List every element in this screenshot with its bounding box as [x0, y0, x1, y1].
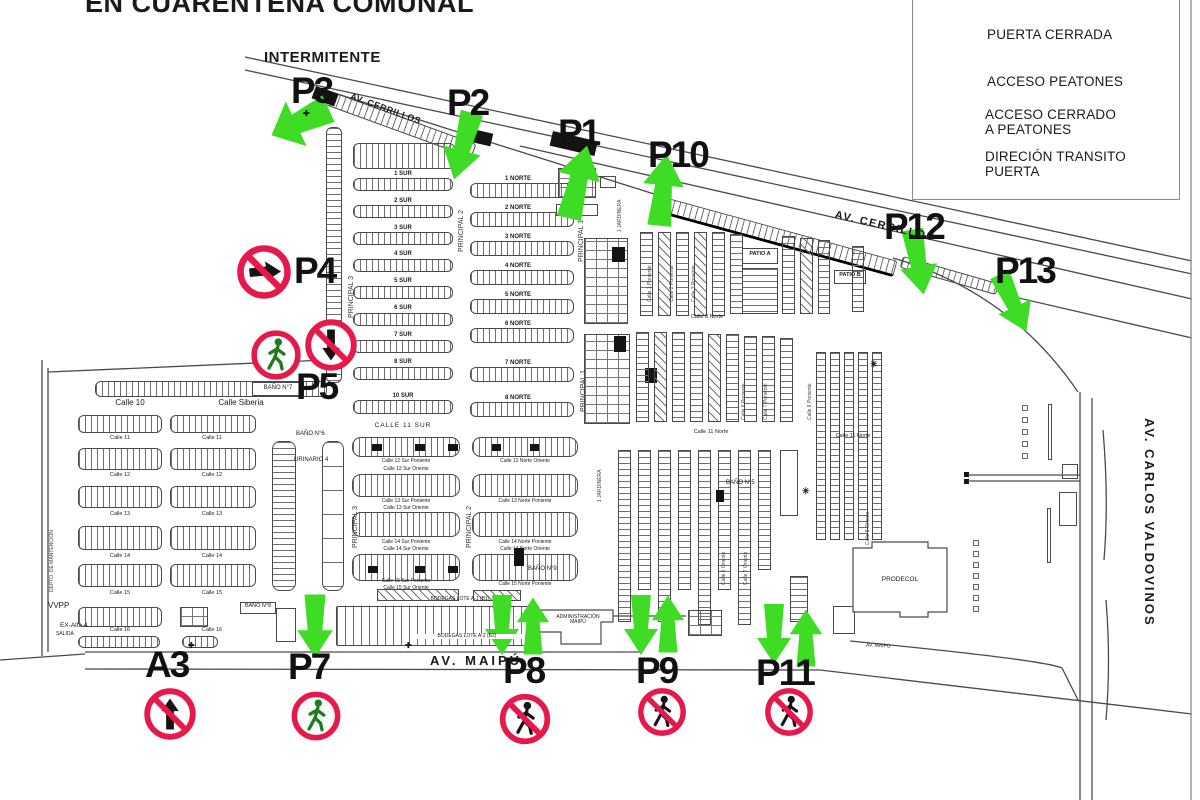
row-label: 8 SUR: [352, 359, 454, 365]
bano5-label: BAÑO N°5: [726, 480, 755, 486]
gate-label-p4: P4: [294, 250, 335, 292]
row-label: 4 SUR: [352, 251, 454, 257]
vvpp-label: VVPP: [48, 602, 69, 611]
calle-11-sur-label: CALLE 11 SUR: [352, 422, 454, 429]
vert-calle-label: Calle 7 Poniente: [764, 383, 769, 420]
calle-11-norte-label: Calle 11 Norte: [818, 434, 888, 440]
gate-label-p11: P11: [756, 652, 814, 694]
row-label: 5 NORTE: [468, 292, 568, 298]
vert-calle-label: Calle 6 Oriente: [722, 552, 727, 585]
calle-label: Calle 12: [176, 473, 248, 479]
intermittent-note: INTERMITENTE: [264, 50, 381, 66]
calle-wide-label: Calle 12 Sur Poniente: [352, 459, 460, 464]
bodega-a2-label: BODEGAS LOTE A-2 (B2): [412, 634, 522, 639]
gate-label-p13: P13: [995, 250, 1055, 292]
calle-label: Calle 14: [86, 554, 154, 560]
bodega-a1-label: BODEGAS LOTE A-1 (B1): [400, 597, 520, 602]
star-marker: ✳: [802, 487, 810, 497]
urinario-label: URINARIO 4: [294, 457, 328, 463]
vert-calle-label: Calle 8 Poniente: [808, 383, 813, 420]
legend-item-label: ACCESO CERRADO A PEATONES: [985, 107, 1116, 137]
depto-mantencion-label: DEPTO. DE MANTENCIÓN: [50, 530, 55, 592]
gate-label-p10: P10: [648, 134, 708, 176]
legend-item-label: PUERTA CERRADA: [987, 27, 1112, 42]
gate-label-p2: P2: [447, 82, 488, 124]
row-label: 8 NORTE: [468, 395, 568, 401]
cross-marker: ✚: [303, 110, 310, 119]
ex-alfa-label: EX-Alfa 4: [60, 622, 87, 629]
bano9-label: BAÑO N°9: [528, 566, 557, 572]
calle-10-label: Calle 10: [92, 399, 168, 408]
calle-label: Calle 12: [86, 473, 154, 479]
calle-label: Calle 11: [176, 436, 248, 442]
row-label: 1 SUR: [352, 171, 454, 177]
gate-label-p3: P3: [291, 70, 332, 112]
vert-calle-label: Calle 1 Poniente: [648, 265, 653, 302]
street-label-principal-2: PRINCIPAL 2: [458, 210, 466, 252]
administracion-label: ADMINISTRACIÓN MAIPÚ: [554, 615, 602, 626]
street-label-jardinera-north: 1 JARDINERA: [618, 199, 623, 232]
vert-calle-label: Calle 2 Poniente: [670, 265, 675, 302]
calle-label: Calle 11: [86, 436, 154, 442]
row-label: 3 SUR: [352, 225, 454, 231]
calle-label: Calle 15: [176, 591, 248, 597]
calle-wide-label: Calle 12 Norte Oriente: [472, 459, 578, 464]
row-label: 2 SUR: [352, 198, 454, 204]
row-label: 7 NORTE: [468, 360, 568, 366]
salida-label: SALIDA: [56, 632, 74, 637]
legend-item-label: DIRECIÓN TRANSITO PUERTA: [985, 149, 1126, 179]
calle-label: Calle 16: [176, 628, 248, 634]
calle-wide-label: Calle 14 Sur Oriente: [352, 547, 460, 552]
calle-wide-label: Calle 14 Norte Oriente: [472, 547, 578, 552]
vert-calle-label: Calle 3 Poniente: [692, 265, 697, 302]
row-label: 10 SUR: [352, 393, 454, 399]
street-label-jardinera-south: 1 JARDINERA: [598, 469, 603, 502]
row-label: 5 SUR: [352, 278, 454, 284]
calle-label: Calle 13: [86, 512, 154, 518]
patio-a-label: PATIO A: [742, 252, 778, 258]
street-label-av-maipu: AV. MAIPÚ: [430, 654, 522, 668]
calle-label: Calle 13: [176, 512, 248, 518]
bano7-label: BAÑO N°7: [253, 385, 303, 391]
page-title: EN CUARENTENA COMUNAL: [85, 0, 474, 19]
calle-wide-label: Calle 12 Sur Oriente: [352, 467, 460, 472]
vert-calle-label: Calle 8 Oriente: [866, 512, 871, 545]
vert-calle-label: Calle 7 Oriente: [744, 552, 749, 585]
street-label-av-carlos-valdovinos: AV. CARLOS VALDOVINOS: [1142, 418, 1156, 627]
street-label-av-cerrillos-west: AV. CERRILLOS: [349, 92, 422, 127]
calle-wide-label: Calle 13 Sur Poniente: [352, 499, 460, 504]
prodecol-label: PRODECOL: [868, 576, 932, 583]
cross-marker: ✚: [188, 642, 195, 651]
patio-b-label: PATIO B: [834, 273, 866, 279]
calle-wide-label: Calle 13 Sur Oriente: [352, 506, 460, 511]
row-label: 1 NORTE: [468, 176, 568, 182]
row-label: 2 NORTE: [468, 205, 568, 211]
calle-8-norte-label: Calle 8 Norte: [672, 315, 742, 321]
street-label-principal-1: PRINCIPAL 1: [578, 220, 586, 262]
legend-item-label: ACCESO PEATONES: [987, 74, 1123, 89]
gate-label-p9: P9: [636, 650, 677, 692]
row-label: 6 SUR: [352, 305, 454, 311]
cross-marker: ✚: [405, 642, 412, 651]
calle-wide-label: Calle 14 Sur Poniente: [352, 540, 460, 545]
gate-label-p1: P1: [558, 112, 599, 154]
calle-wide-label: Calle 14 Norte Poniente: [472, 540, 578, 545]
gate-label-a3: A3: [145, 644, 188, 686]
calle-wide-label: Calle 15 Norte Poniente: [472, 582, 578, 587]
calle-label: Calle 14: [176, 554, 248, 560]
calle-label: Calle 15: [86, 591, 154, 597]
row-label: 4 NORTE: [468, 263, 568, 269]
row-label: 7 SUR: [352, 332, 454, 338]
legend-title: SIMBOLOGÍA: [946, 0, 1043, 4]
vert-calle-label: Calle 6 Poniente: [742, 383, 747, 420]
street-label-av-maipu-small: AV. MAIPÚ: [866, 643, 891, 650]
legend-box: SIMBOLOGÍA PUERTA CERRADA ACCESO PEATONE…: [912, 0, 1180, 200]
street-label-principal-1-south: PRINCIPAL 1: [580, 370, 588, 412]
calle-wide-label: Calle 13 Norte Poniente: [472, 499, 578, 504]
calle-wide-label: Calle 15 Sur Poniente: [352, 579, 460, 584]
calle-siberia-label: Calle Siberia: [198, 399, 284, 408]
calle-label: Calle 16: [86, 628, 154, 634]
calle-11-norte-label: Calle 11 Norte: [676, 430, 746, 436]
calle-wide-label: Calle 15 Sur Oriente: [352, 586, 460, 591]
row-label: 6 NORTE: [468, 321, 568, 327]
star-marker: ✳: [870, 360, 878, 370]
bano6-label: BAÑO N°6: [296, 431, 325, 437]
gate-label-p7: P7: [288, 646, 329, 688]
bano8-label: BAÑO N°8: [240, 604, 276, 610]
row-label: 3 NORTE: [468, 234, 568, 240]
